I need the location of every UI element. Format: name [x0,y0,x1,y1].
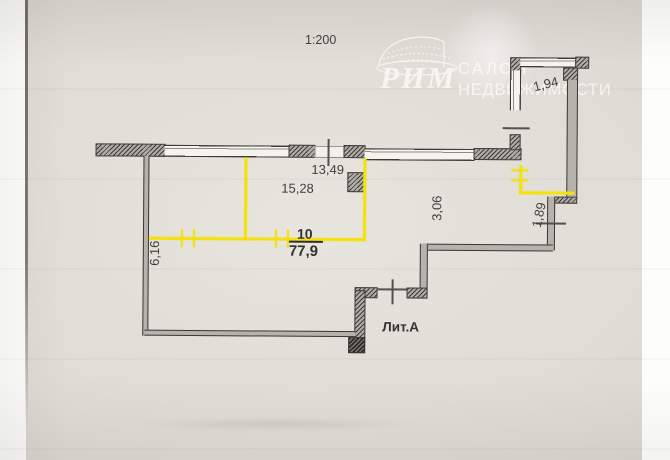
wall-segment [423,244,553,252]
door-opening [315,146,345,158]
wall-segment [96,143,166,156]
window-segment [165,145,290,158]
dim-room-width-label: 15,28 [281,181,314,196]
dimension-tick [503,127,530,129]
wall-segment [566,80,578,199]
building-label: Лит.А [382,319,419,334]
dim-left-side-label: 6,16 [147,241,162,266]
floor-plan: 13,49 15,28 3,06 6,16 1,89 1,94 10 77,9 … [0,0,670,460]
dim-inner-right-label: 3,06 [429,196,444,221]
highlight-line [244,157,248,239]
dim-right-step-label: 1,89 [529,201,549,229]
window-segment [520,57,577,67]
wall-segment [344,145,366,158]
wall-segment [407,288,428,299]
highlight-tick [193,229,195,247]
wall-segment [510,134,521,150]
highlight-tick [275,230,277,248]
highlight-line [519,191,574,194]
pillar-block [348,337,365,353]
scanned-floorplan-photo: 1:200 РИМ САЛОН НЕДВИЖИМОСТИ [0,0,670,460]
highlight-line [363,158,367,240]
window-segment [364,148,474,161]
highlight-tick [181,229,183,247]
highlight-tick [511,179,528,181]
wall-segment [354,290,365,338]
wall-segment [289,145,316,158]
wall-segment [420,244,428,294]
wall-segment [144,330,355,337]
room-area-label: 77,9 [289,243,318,260]
room-number-label: 10 [297,226,313,242]
window-segment [510,70,521,110]
dimension-tick [391,279,393,304]
dim-top-label: 13,49 [311,162,344,177]
highlight-tick [511,169,528,171]
dim-top-right-label: 1,94 [532,74,560,95]
